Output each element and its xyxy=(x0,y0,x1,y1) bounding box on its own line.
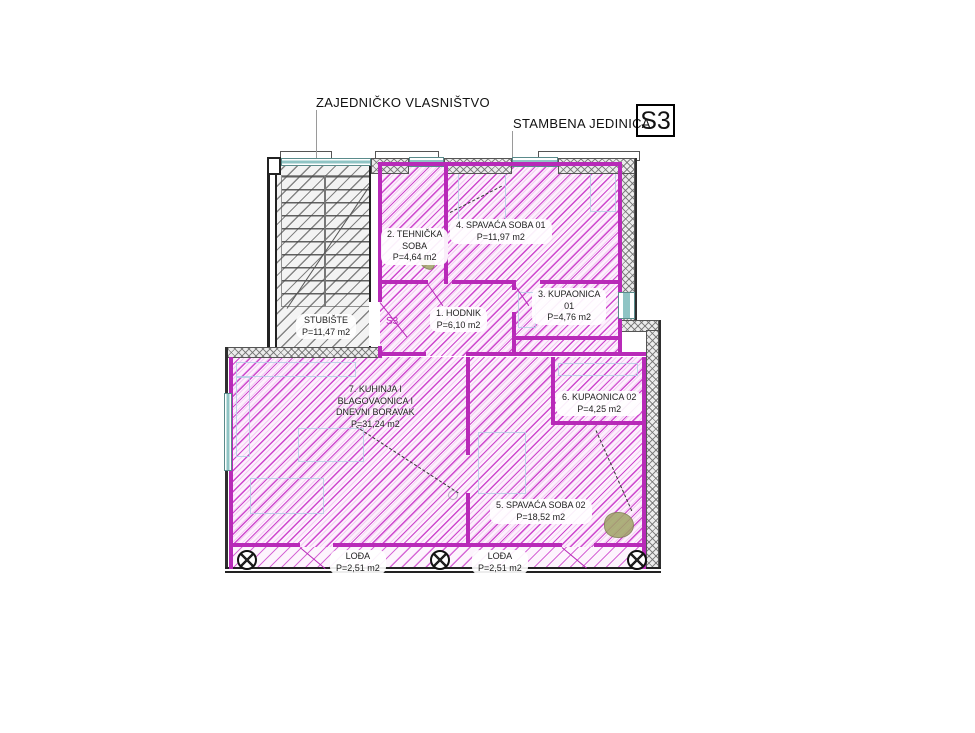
room-name: BLAGOVAONICA I xyxy=(336,396,415,408)
unit-wall xyxy=(452,280,514,284)
room-area: P=4,64 m2 xyxy=(387,252,442,264)
room-name: STUBIŠTE xyxy=(302,315,350,327)
kitchen-window xyxy=(224,393,232,471)
room-area: P=31,24 m2 xyxy=(336,419,415,431)
room-name: 6. KUPAONICA 02 xyxy=(562,392,636,404)
unit-wall xyxy=(512,312,516,356)
furniture-fixture-outline xyxy=(558,363,638,376)
room-area: P=18,52 m2 xyxy=(496,512,586,524)
entry-door-opening xyxy=(369,302,380,346)
room-area: P=2,51 m2 xyxy=(478,563,522,575)
wall-end-cap xyxy=(267,157,281,175)
room-name: 7. KUHINJA I xyxy=(336,384,415,396)
column xyxy=(237,550,257,570)
symbol-icon xyxy=(448,490,458,500)
room-label-kupaonica01: 3. KUPAONICA 01 P=4,76 m2 xyxy=(532,288,606,325)
room-name: 2. TEHNIČKA xyxy=(387,229,442,241)
stair-treads xyxy=(282,176,370,306)
floor-plan-canvas: ZAJEDNIČKO VLASNIŠTVO STAMBENA JEDINICA … xyxy=(0,0,975,733)
furniture-bed-outline xyxy=(458,170,506,224)
room-label-spavaca01: 4. SPAVAĆA SOBA 01 P=11,97 m2 xyxy=(450,219,552,244)
common-ownership-label: ZAJEDNIČKO VLASNIŠTVO xyxy=(316,95,490,110)
room-name: 3. KUPAONICA xyxy=(538,289,600,301)
unit-wall xyxy=(378,162,622,166)
unit-wall xyxy=(618,162,622,356)
stair-divider xyxy=(324,176,326,306)
outer-wall-band xyxy=(227,347,380,358)
room-area: P=11,47 m2 xyxy=(302,327,350,339)
unit-wall xyxy=(444,162,448,284)
room-label-spavaca02: 5. SPAVAĆA SOBA 02 P=18,52 m2 xyxy=(490,499,592,524)
room-label-kuhinja: 7. KUHINJA I BLAGOVAONICA I DNEVNI BORAV… xyxy=(336,384,415,430)
furniture-bed-outline xyxy=(478,432,526,494)
room-area: P=2,51 m2 xyxy=(336,563,380,575)
unit-wall xyxy=(333,543,562,547)
room-name: LOĐA xyxy=(336,551,380,563)
unit-wall xyxy=(378,352,426,356)
room-label-hodnik: 1. HODNIK P=6,10 m2 xyxy=(430,307,487,332)
unit-wall xyxy=(466,352,622,356)
right-wall-lower xyxy=(646,330,659,570)
staircase-left-wall xyxy=(267,158,277,354)
room-name: 5. SPAVAĆA SOBA 02 xyxy=(496,500,586,512)
right-wall-upper-edge xyxy=(635,158,637,322)
room-area: P=4,76 m2 xyxy=(538,312,600,324)
furniture-counter-outline xyxy=(236,362,356,377)
room-label-stubiste: STUBIŠTE P=11,47 m2 xyxy=(296,314,356,339)
unit-type-label: STAMBENA JEDINICA xyxy=(513,116,651,131)
unit-wall xyxy=(380,280,428,284)
room-label-tehnicka: 2. TEHNIČKA SOBA P=4,64 m2 xyxy=(381,228,448,265)
unit-wall xyxy=(642,357,646,569)
room-label-lodja2: LOĐA P=2,51 m2 xyxy=(472,550,528,575)
furniture-table-outline xyxy=(298,428,364,462)
room-name: 1. HODNIK xyxy=(436,308,481,320)
room-name: DNEVNI BORAVAK xyxy=(336,407,415,419)
room-label-kupaonica02: 6. KUPAONICA 02 P=4,25 m2 xyxy=(556,391,642,416)
right-wall-lower-edge xyxy=(659,320,661,572)
column xyxy=(430,550,450,570)
unit-wall xyxy=(512,336,622,340)
furniture-sofa-outline xyxy=(250,478,324,514)
unit-code-box: S3 xyxy=(636,104,675,137)
unit-wall xyxy=(466,493,470,547)
room-area: P=6,10 m2 xyxy=(436,320,481,332)
plant-icon xyxy=(604,512,634,538)
unit-type-leader-line xyxy=(512,131,513,158)
room-name: SOBA xyxy=(387,241,442,253)
unit-wall xyxy=(540,280,622,284)
room-area: P=11,97 m2 xyxy=(456,232,546,244)
unit-wall xyxy=(466,357,470,455)
furniture-counter-outline xyxy=(236,377,250,457)
column xyxy=(627,550,647,570)
staircase-window xyxy=(281,158,371,166)
unit-wall xyxy=(551,357,555,425)
wall-pier xyxy=(558,158,635,174)
room-name: 4. SPAVAĆA SOBA 01 xyxy=(456,220,546,232)
room-area: P=4,25 m2 xyxy=(562,404,636,416)
unit-wall xyxy=(229,543,300,547)
furniture-wardrobe-outline xyxy=(590,172,616,212)
room-label-lodja1: LOĐA P=2,51 m2 xyxy=(330,550,386,575)
unit-wall xyxy=(551,421,646,425)
room-name: 01 xyxy=(538,301,600,313)
room-name: LOĐA xyxy=(478,551,522,563)
entry-unit-code-label: S3 xyxy=(386,316,398,329)
unit-wall xyxy=(594,543,646,547)
common-ownership-leader-line xyxy=(316,110,317,158)
unit-wall xyxy=(622,352,646,356)
wall-pier xyxy=(371,158,409,174)
wall-pier xyxy=(444,158,512,174)
bathroom-window xyxy=(618,292,635,319)
